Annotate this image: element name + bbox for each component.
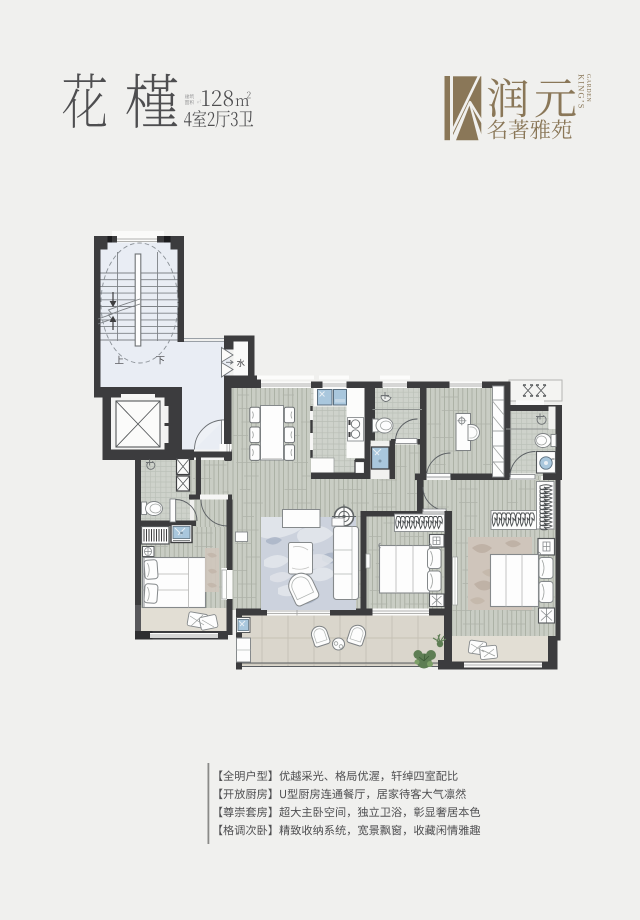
svg-text:KING’S: KING’S: [577, 74, 586, 110]
svg-text:GARDEN: GARDEN: [585, 74, 591, 102]
